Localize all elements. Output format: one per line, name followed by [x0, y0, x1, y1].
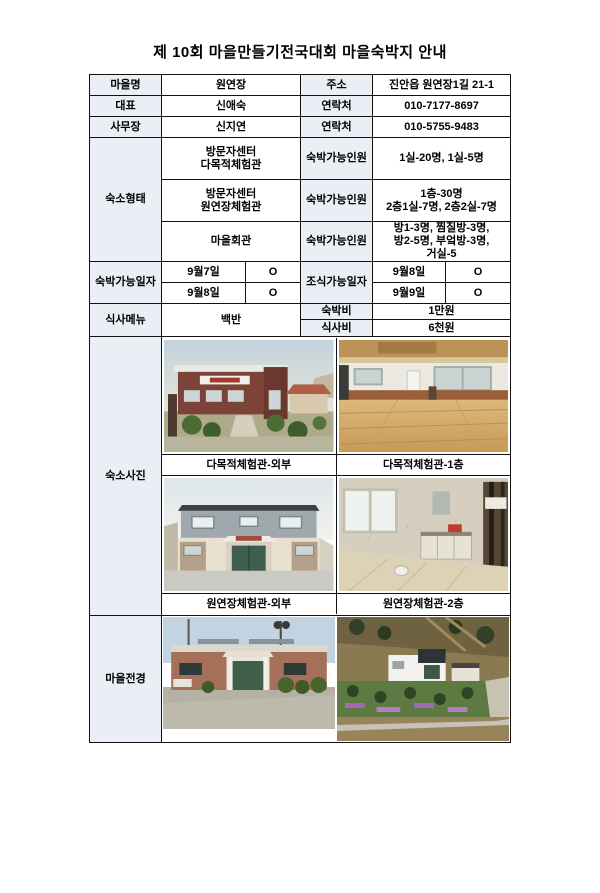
table-row: 숙박가능일자 9월7일 O 조식가능일자 9월8일 O [90, 262, 511, 283]
photo-caption: 다목적체험관-1층 [337, 455, 511, 475]
label-stay-fee: 숙박비 [301, 304, 373, 320]
value-capacity-2: 1층-30명 2층1실-7명, 2층2실-7명 [373, 180, 511, 222]
mark-breakfast-date-2: O [446, 283, 511, 304]
label-address: 주소 [301, 75, 373, 96]
label-manager: 사무장 [90, 117, 162, 138]
value-stay-date-1: 9월7일 [162, 262, 246, 283]
photo-grid: 다목적체험관-외부 다목적체험관-1층 [162, 338, 510, 614]
label-meal-menu: 식사메뉴 [90, 304, 162, 337]
photo-wonyeonjang-hall-exterior [162, 476, 336, 593]
value-breakfast-date-2: 9월9일 [373, 283, 446, 304]
label-breakfast-dates: 조식가능일자 [301, 262, 373, 304]
label-lodging-type: 숙소형태 [90, 138, 162, 262]
label-capacity-1: 숙박가능인원 [301, 138, 373, 180]
lodging-photos-area: 다목적체험관-외부 다목적체험관-1층 [162, 337, 511, 616]
mark-breakfast-date-1: O [446, 262, 511, 283]
photo-multipurpose-hall-first-floor [337, 338, 511, 454]
photo-multipurpose-hall-exterior [162, 338, 336, 454]
value-address: 진안읍 원연장1길 21-1 [373, 75, 511, 96]
value-breakfast-date-1: 9월8일 [373, 262, 446, 283]
label-representative: 대표 [90, 96, 162, 117]
village-photo-grid [162, 616, 510, 742]
value-contact-2: 010-5755-9483 [373, 117, 511, 138]
value-contact-1: 010-7177-8697 [373, 96, 511, 117]
document-title: 제 10회 마을만들기전국대회 마을숙박지 안내 [0, 44, 600, 62]
value-capacity-3: 방1-3명, 찜질방-3명, 방2-5명, 부엌방-3명, 거실-5 [373, 222, 511, 262]
mark-stay-date-2: O [246, 283, 301, 304]
label-capacity-2: 숙박가능인원 [301, 180, 373, 222]
photo-village-hall [163, 617, 335, 729]
value-meal-menu: 백반 [162, 304, 301, 337]
value-stay-fee: 1만원 [373, 304, 511, 320]
table-row: 숙소사진 [90, 337, 511, 616]
table-row: 마을전경 [90, 616, 511, 743]
label-village-view: 마을전경 [90, 616, 162, 743]
value-capacity-1: 1실-20명, 1실-5명 [373, 138, 511, 180]
value-meal-fee: 6천원 [373, 320, 511, 337]
label-meal-fee: 식사비 [301, 320, 373, 337]
photo-caption: 다목적체험관-외부 [162, 455, 336, 475]
photo-caption: 원연장체험관-2층 [337, 594, 511, 614]
value-facility-2: 방문자센터 원연장체험관 [162, 180, 301, 222]
label-capacity-3: 숙박가능인원 [301, 222, 373, 262]
table-row: 식사메뉴 백반 숙박비 1만원 [90, 304, 511, 320]
value-village-name: 원연장 [162, 75, 301, 96]
lodging-info-table: 마을명 원연장 주소 진안읍 원연장1길 21-1 대표 신애숙 연락처 010… [89, 74, 511, 743]
label-stay-dates: 숙박가능일자 [90, 262, 162, 304]
value-manager: 신지연 [162, 117, 301, 138]
value-representative: 신애숙 [162, 96, 301, 117]
value-stay-date-2: 9월8일 [162, 283, 246, 304]
table-row: 대표 신애숙 연락처 010-7177-8697 [90, 96, 511, 117]
label-contact-1: 연락처 [301, 96, 373, 117]
label-village-name: 마을명 [90, 75, 162, 96]
table-row: 마을명 원연장 주소 진안읍 원연장1길 21-1 [90, 75, 511, 96]
value-facility-1: 방문자센터 다목적체험관 [162, 138, 301, 180]
table-row: 숙소형태 방문자센터 다목적체험관 숙박가능인원 1실-20명, 1실-5명 [90, 138, 511, 180]
mark-stay-date-1: O [246, 262, 301, 283]
label-lodging-photos: 숙소사진 [90, 337, 162, 616]
photo-caption: 원연장체험관-외부 [162, 594, 336, 614]
photo-wonyeonjang-hall-second-floor [337, 476, 511, 593]
photo-village-aerial-view [337, 617, 509, 741]
table-row: 사무장 신지연 연락처 010-5755-9483 [90, 117, 511, 138]
village-view-area [162, 616, 511, 743]
value-facility-3: 마을회관 [162, 222, 301, 262]
label-contact-2: 연락처 [301, 117, 373, 138]
